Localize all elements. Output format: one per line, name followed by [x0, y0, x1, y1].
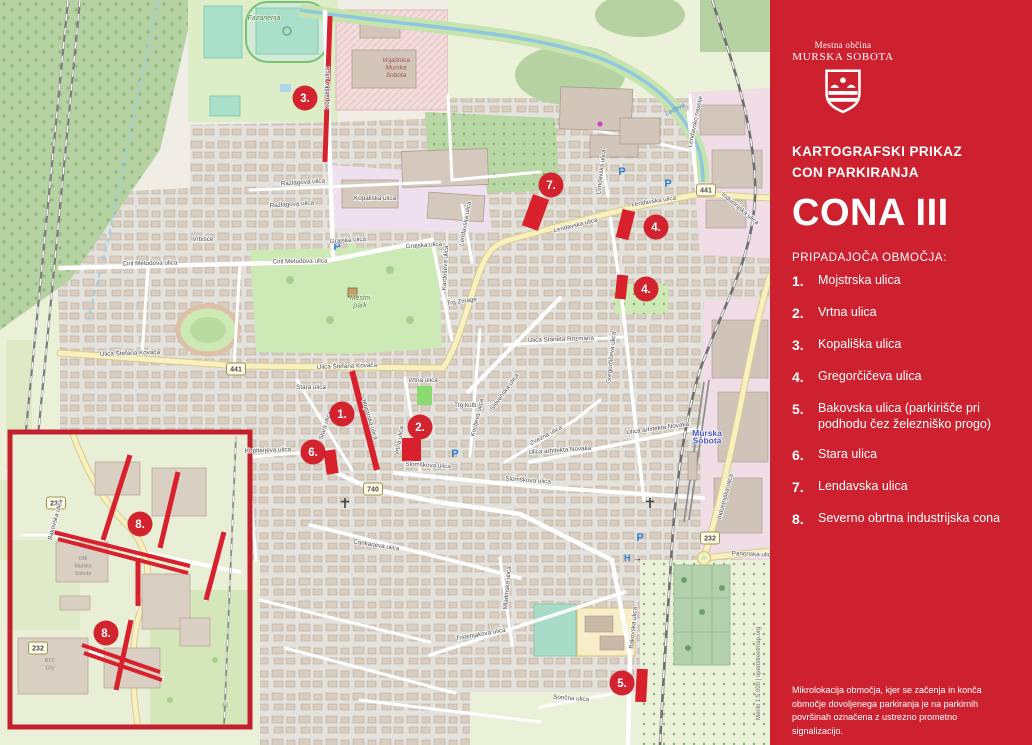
hospital-icon-group: H →	[624, 553, 642, 563]
area-label: Kopališka ulica	[818, 337, 901, 355]
area-number: 3.	[792, 337, 818, 355]
place-label: MurskaSobota	[692, 428, 722, 445]
road-badge-label: 232	[32, 646, 44, 653]
municipality-logo: Mestna občina MURSKA SOBOTA	[770, 40, 916, 119]
parking-icon: P	[664, 178, 671, 190]
area-label: Mojstrska ulica	[818, 273, 901, 291]
place-label: VojašnicaMurskaSobota	[382, 57, 410, 79]
parking-icon: P	[618, 166, 625, 178]
map-attribution: Merilo 1:5.000 | openstreetmap.org	[756, 627, 762, 720]
areas-heading: PRIPADAJOČA OBMOČJA:	[792, 252, 947, 264]
parking-zone-mark	[635, 669, 648, 703]
zone-marker-label: 2.	[415, 422, 425, 434]
footnote: Mikrolokacija območja, kjer se začenja i…	[792, 684, 1010, 738]
street-label: Kopališka ulica	[324, 67, 331, 110]
area-label: Lendavska ulica	[818, 479, 908, 497]
zone-marker-label: 4.	[641, 284, 651, 296]
map-attribution-group: Merilo 1:5.000 | openstreetmap.org	[756, 627, 762, 720]
area-label: Bakovska ulica (parkirišče pri podhodu č…	[818, 401, 1012, 432]
zone-marker-label: 7.	[546, 180, 556, 192]
parking-zone-poster: 441441740232232232 PPPPP H → FazanerijaV…	[0, 0, 1032, 745]
zone-marker-label: 8.	[135, 519, 145, 531]
street-label: Kopališka ulica	[354, 195, 397, 202]
street-label: Vrtna ulica	[408, 377, 438, 384]
areas-list: 1.Mojstrska ulica 2.Vrtna ulica 3.Kopali…	[792, 273, 1012, 543]
area-item: 2.Vrtna ulica	[792, 305, 1012, 323]
area-item: 1.Mojstrska ulica	[792, 273, 1012, 291]
zone-marker-label: 6.	[308, 447, 318, 459]
road-badge-label: 441	[700, 188, 712, 195]
parking-icon: P	[451, 448, 458, 460]
street-label: Ciril Metodova ulica	[272, 258, 328, 266]
poster-subtitle-line2: CON PARKIRANJA	[792, 163, 962, 184]
road-badge-label: 441	[230, 367, 242, 374]
street-label: Ciril Metodova ulica	[122, 260, 178, 268]
area-item: 5.Bakovska ulica (parkirišče pri podhodu…	[792, 401, 1012, 432]
hospital-icon: H →	[624, 553, 642, 563]
coat-of-arms-icon	[824, 68, 862, 114]
area-number: 5.	[792, 401, 818, 432]
area-item: 3.Kopališka ulica	[792, 337, 1012, 355]
cemetery	[674, 565, 730, 665]
zone-marker-label: 8.	[101, 628, 111, 640]
area-number: 6.	[792, 447, 818, 465]
road-badge-label: 232	[704, 536, 716, 543]
area-item: 4.Gregorčičeva ulica	[792, 369, 1012, 387]
area-number: 4.	[792, 369, 818, 387]
area-number: 1.	[792, 273, 818, 291]
area-label: Severno obrtna industrijska cona	[818, 511, 1000, 529]
zone-marker-label: 5.	[617, 678, 627, 690]
parking-zone-mark	[402, 438, 421, 461]
municipality-name: MURSKA SOBOTA	[770, 51, 916, 63]
area-item: 7.Lendavska ulica	[792, 479, 1012, 497]
area-item: 6.Stara ulica	[792, 447, 1012, 465]
green-square	[417, 386, 432, 405]
place-label: BTCCity	[45, 658, 56, 671]
area-number: 8.	[792, 511, 818, 529]
city-map: 441441740232232232 PPPPP H → FazanerijaV…	[0, 0, 770, 745]
place-label: Fazanerija	[248, 15, 281, 22]
zone-marker-label: 3.	[300, 93, 310, 105]
poster-subtitle: KARTOGRAFSKI PRIKAZ CON PARKIRANJA	[792, 142, 962, 184]
area-number: 7.	[792, 479, 818, 497]
area-number: 2.	[792, 305, 818, 323]
sidebar-panel: Mestna občina MURSKA SOBOTA KARTOGRAFSKI…	[770, 0, 1032, 745]
street-label: Vrbišče	[193, 236, 214, 243]
area-label: Gregorčičeva ulica	[818, 369, 922, 387]
area-item: 8.Severno obrtna industrijska cona	[792, 511, 1012, 529]
parking-icon: P	[636, 532, 643, 544]
road-badge-label: 740	[367, 487, 379, 494]
zone-marker-label: 1.	[337, 409, 347, 421]
zone-marker-label: 4.	[651, 222, 661, 234]
area-label: Vrtna ulica	[818, 305, 877, 323]
poster-subtitle-line1: KARTOGRAFSKI PRIKAZ	[792, 142, 962, 163]
street-label: Stara ulica	[296, 384, 326, 391]
zone-title: CONA III	[792, 192, 949, 235]
area-label: Stara ulica	[818, 447, 877, 465]
municipality-name-small: Mestna občina	[770, 40, 916, 50]
